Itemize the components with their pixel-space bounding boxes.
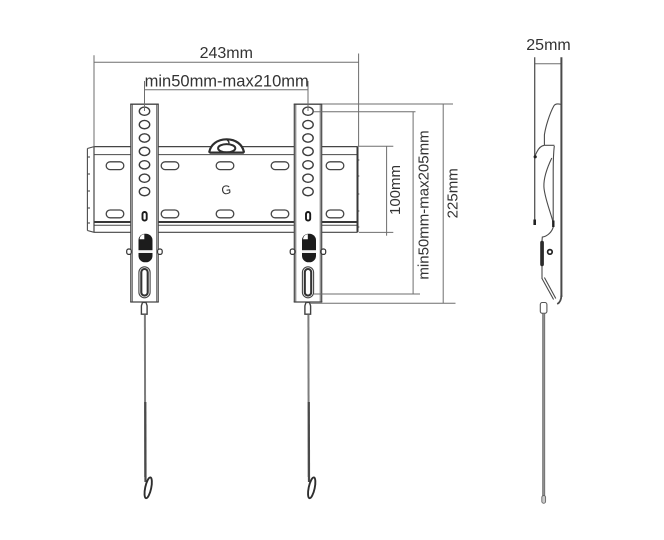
svg-text:G: G xyxy=(221,183,233,198)
svg-text:min50mm-max205mm: min50mm-max205mm xyxy=(415,130,432,279)
svg-text:25mm: 25mm xyxy=(526,37,570,54)
svg-text:243mm: 243mm xyxy=(200,45,253,62)
svg-text:min50mm-max210mm: min50mm-max210mm xyxy=(145,73,309,91)
svg-text:100mm: 100mm xyxy=(387,165,404,215)
svg-text:225mm: 225mm xyxy=(444,168,461,218)
